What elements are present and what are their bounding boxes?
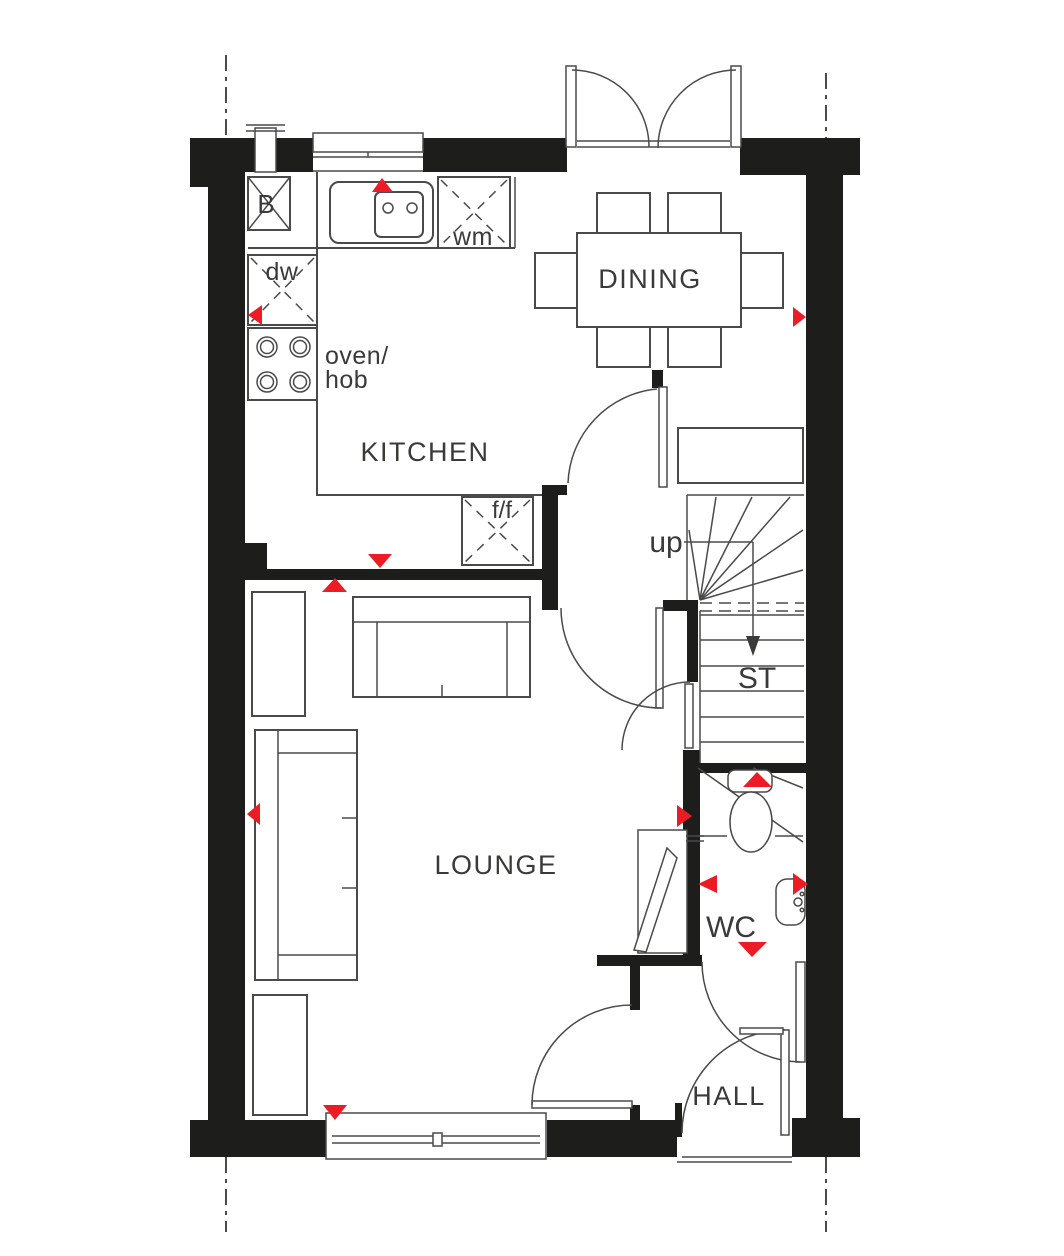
marker-right-dining-icon: [793, 307, 806, 327]
wall-hall-vert: [630, 966, 640, 1010]
wall-bottom-left-cap: [190, 1120, 326, 1157]
wall-bottom-mid: [547, 1120, 677, 1157]
marker-left-lounge-icon: [247, 803, 260, 825]
wall-top-c: [740, 138, 860, 175]
lounge-door-leaf: [656, 608, 663, 708]
lounge-window-mullion: [433, 1133, 442, 1146]
sofa-two-seat: [353, 597, 530, 697]
washing-machine-label: wm: [452, 223, 493, 251]
wc-label: WC: [706, 911, 756, 944]
wall-left: [208, 172, 245, 1120]
lounge-label: LOUNGE: [434, 850, 557, 880]
wall-kitchen-lounge: [245, 569, 558, 580]
sofa2-outline: [353, 597, 530, 697]
wall-stair-lounge: [687, 600, 698, 682]
french-door-right-swing-arc: [658, 70, 736, 148]
wc-door-leaf: [796, 962, 805, 1062]
kitchen-window: [313, 133, 423, 172]
marker-down-wc-icon: [738, 942, 767, 957]
wall-top-b: [423, 138, 567, 172]
floorplan-page: KITCHEN DINING LOUNGE HALL WC ST up B dw…: [0, 0, 1064, 1256]
oven-hob-label-line2: hob: [325, 366, 368, 394]
front-door-post: [675, 1103, 682, 1137]
hall-lounge-door-swing-arc: [532, 1005, 632, 1105]
up-label: up: [649, 526, 682, 559]
kitchen-door-swing-arc: [568, 389, 657, 483]
oven-hob-unit: [248, 328, 317, 400]
sofa-three-seat: [255, 730, 357, 980]
toilet-bowl: [730, 792, 772, 852]
wall-hall-top: [597, 955, 702, 966]
floorplan-drawing: KITCHEN DINING LOUNGE HALL WC ST up B dw…: [0, 0, 1064, 1256]
wall-top-a: [190, 138, 315, 172]
kitchen-label: KITCHEN: [360, 437, 489, 467]
front-door-leaf: [781, 1030, 789, 1135]
french-door-left-swing-arc: [572, 70, 649, 147]
lounge-side-unit-top: [252, 592, 305, 716]
lounge-door-swing-arc: [561, 608, 661, 708]
dishwasher-label: dw: [266, 258, 299, 286]
kitchen-window-frame: [313, 133, 423, 152]
boiler-label: B: [257, 189, 274, 219]
lounge-door-from-hall: [532, 1005, 632, 1108]
lounge-window: [326, 1113, 547, 1159]
up-arrow-head-icon: [746, 636, 760, 656]
winder-6: [700, 570, 803, 600]
hall-label: HALL: [692, 1081, 766, 1111]
wc-fixtures: [728, 770, 805, 925]
dining-chair-top-right: [668, 193, 721, 233]
dining-chair-top-left: [597, 193, 650, 233]
stair-lobby-cupboard: [678, 428, 803, 483]
dining-chair-right: [741, 253, 783, 308]
soil-pipe-body: [255, 128, 276, 172]
french-doors: [566, 66, 741, 148]
french-door-left-leaf: [566, 66, 576, 147]
wall-kitchen-lounge-step: [240, 543, 267, 569]
winder-1: [689, 530, 700, 600]
wall-right: [806, 175, 843, 1118]
store-label: ST: [738, 662, 776, 695]
fridge-freezer-label: f/f: [492, 497, 512, 524]
lounge-side-unit-bottom: [253, 995, 307, 1115]
wall-bottom-right-cap: [792, 1118, 860, 1157]
lounge-door-from-kitchen: [561, 608, 663, 708]
wall-ff-stub: [542, 485, 558, 610]
french-door-right-leaf: [731, 66, 741, 147]
marker-left-wc-icon: [698, 875, 717, 893]
sink-bowl: [375, 192, 423, 237]
wall-ff-stub-cap: [542, 485, 567, 495]
dining-chair-bottom-right: [668, 327, 721, 367]
dining-label: DINING: [598, 264, 702, 294]
marker-down-kitchen-wall-icon: [368, 554, 392, 568]
lounge-hall-door-leaf: [685, 684, 693, 748]
dining-chair-bottom-left: [597, 327, 650, 367]
kitchen-door: [568, 387, 667, 487]
sofa3-outline: [255, 730, 357, 980]
hall-lounge-door-leaf: [532, 1101, 632, 1108]
marker-up-lounge-wall-icon: [322, 578, 347, 592]
wall-dining-stub: [652, 370, 663, 388]
dining-chair-left: [535, 253, 577, 308]
front-door-head: [740, 1028, 783, 1034]
kitchen-door-leaf: [659, 387, 667, 487]
